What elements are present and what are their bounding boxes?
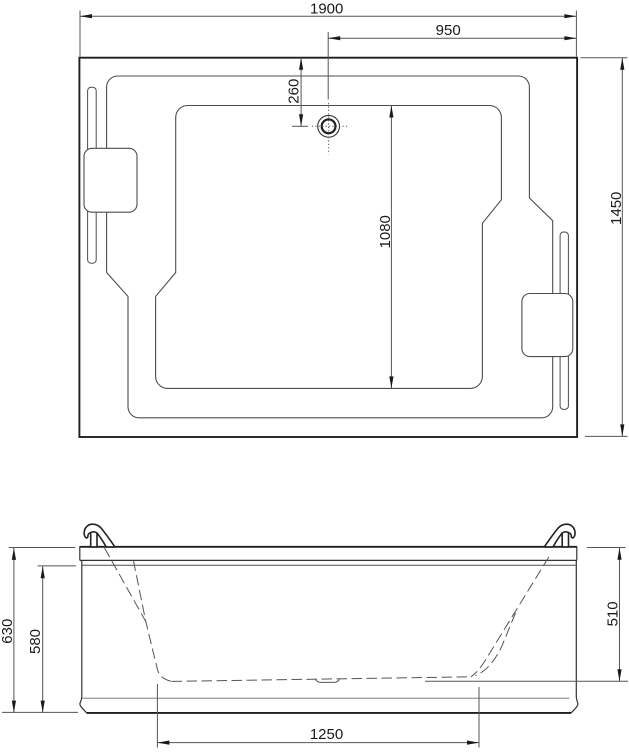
svg-text:510: 510	[605, 601, 622, 626]
svg-text:630: 630	[0, 619, 16, 644]
svg-text:950: 950	[436, 22, 461, 39]
svg-text:1250: 1250	[310, 726, 343, 743]
svg-text:1450: 1450	[608, 192, 625, 225]
svg-text:1900: 1900	[310, 1, 343, 18]
svg-text:260: 260	[286, 79, 303, 104]
svg-text:580: 580	[27, 629, 44, 654]
svg-text:1080: 1080	[377, 215, 394, 248]
